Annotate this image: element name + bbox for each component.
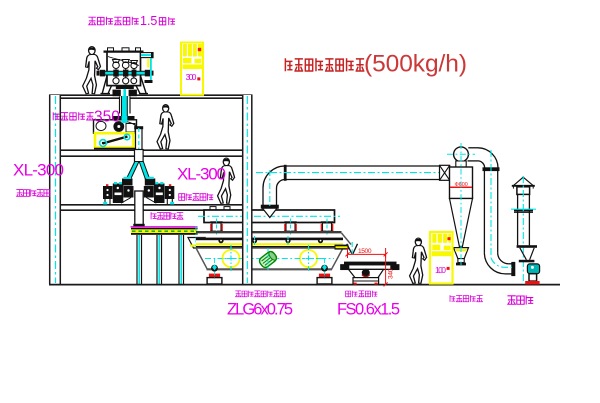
svg-text:340: 340 xyxy=(388,268,395,279)
svg-text:XL-300: XL-300 xyxy=(177,165,226,184)
svg-text:(500kg/h): (500kg/h) xyxy=(364,51,467,78)
svg-text:1.5: 1.5 xyxy=(140,14,157,28)
svg-text:1500: 1500 xyxy=(358,248,372,255)
svg-text:XL-300: XL-300 xyxy=(13,161,64,180)
svg-text:ZLG6x0.75: ZLG6x0.75 xyxy=(227,301,293,319)
svg-text:300: 300 xyxy=(186,72,197,82)
svg-text:Φ600: Φ600 xyxy=(455,182,468,188)
svg-text:350: 350 xyxy=(94,109,120,126)
svg-text:FS0.6x1.5: FS0.6x1.5 xyxy=(337,301,400,319)
svg-text:100: 100 xyxy=(435,265,446,275)
